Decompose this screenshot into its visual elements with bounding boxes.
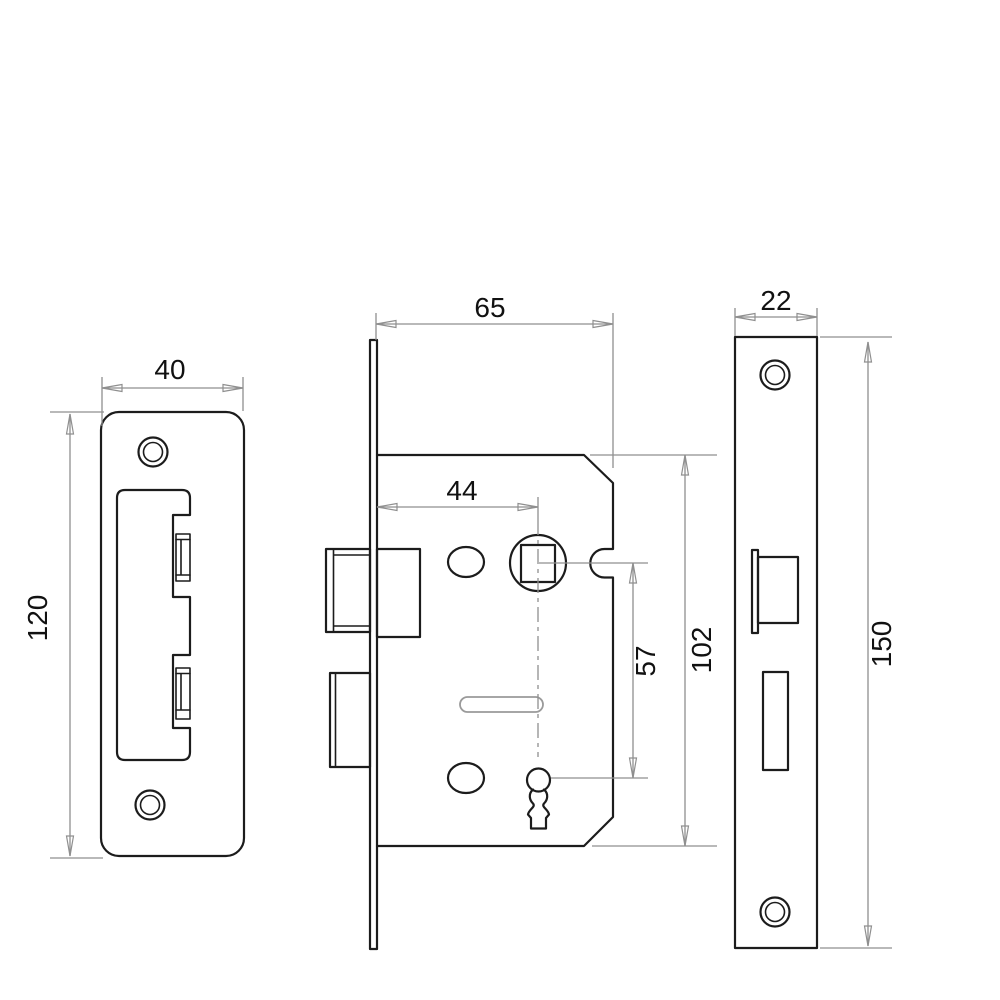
dim-label-40: 40 [154,354,185,385]
latch-keep-box [176,534,190,581]
extension-lines-65 [376,313,613,468]
dimension-120: 120 [22,412,104,858]
dim-label-150: 150 [866,621,897,668]
dim-label-57: 57 [630,645,661,676]
latch-keep-box-outline [176,534,190,581]
dim-label-65: 65 [474,292,505,323]
keyhole-wards [528,790,549,829]
dimension-40: 40 [102,354,243,426]
dim-label-22: 22 [760,285,791,316]
dimension-150: 150 [820,337,897,948]
dim-label-102: 102 [686,627,717,674]
deadbolt [330,673,370,767]
keyhole-circle [527,769,550,792]
dimension-22: 22 [735,285,817,336]
lock-case-view [326,340,613,949]
keyhole [527,769,550,829]
deadbolt-keep-box [176,668,190,719]
latch-bolt [326,549,370,632]
latch-bolt-bevel [334,549,371,632]
screw-hole-bottom-inner [141,796,160,815]
faceplate-outline [735,337,817,948]
extension-lines-120 [50,412,104,858]
strike-plate-outline [101,412,244,856]
deadbolt-keep-box-outline [176,668,190,719]
latch-bolt-outline [326,549,370,632]
dimension-65: 65 [376,292,613,468]
forend-plate-edge [370,340,377,949]
latch-bolt-front [758,557,798,623]
screw-hole-bottom-inner [766,903,785,922]
dim-label-120: 120 [22,595,53,642]
fixing-hole-top [448,547,484,577]
lock-case-outline [377,455,613,846]
technical-drawing: 40 120 [0,0,1000,1000]
faceplate-view [735,337,817,948]
deadbolt-keep-box-detail [176,674,190,711]
fixing-hole-bottom [448,763,484,793]
dimension-57: 57 [539,563,661,778]
strike-plate-view [101,412,244,856]
latch-keep-box-detail [176,540,190,576]
screw-hole-top-inner [766,366,785,385]
deadbolt-front [763,672,788,770]
dimension-44: 44 [377,475,538,520]
handle-slot [460,697,543,712]
screw-hole-top-inner [144,443,163,462]
dim-label-44: 44 [446,475,477,506]
latch-follower-box [377,549,420,637]
